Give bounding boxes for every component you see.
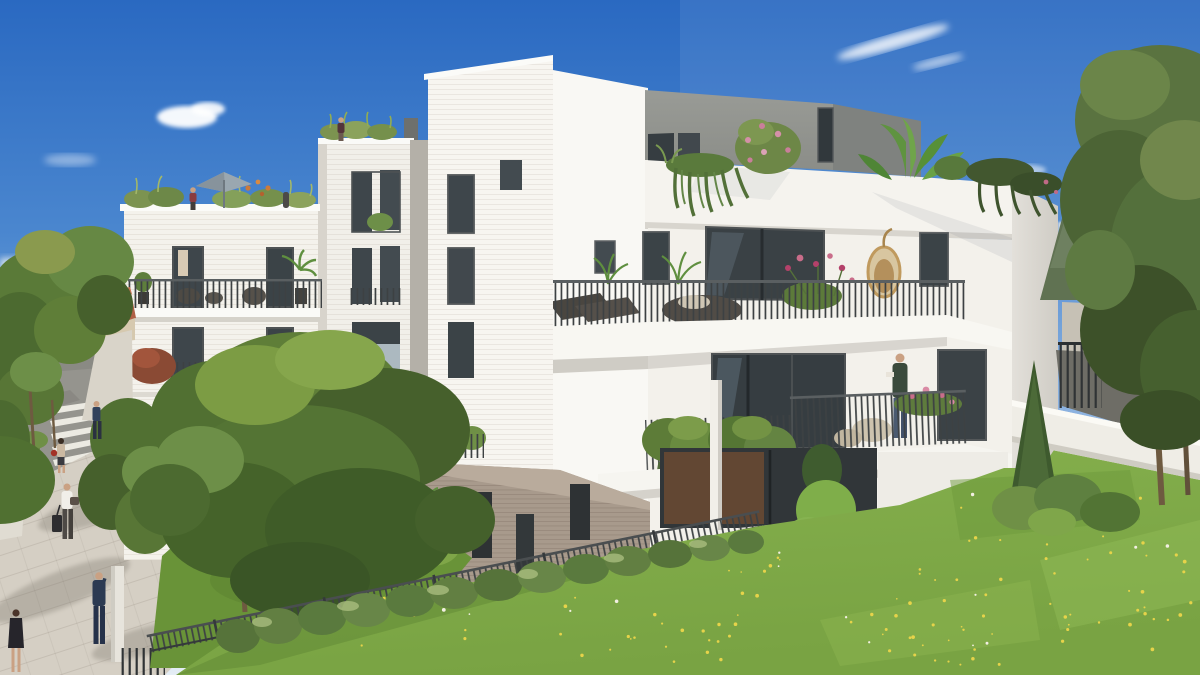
rooftop-woman-left bbox=[190, 187, 197, 210]
scene-canvas bbox=[0, 0, 1200, 675]
architectural-rendering bbox=[0, 0, 1200, 675]
mid-railing bbox=[790, 390, 968, 450]
rooftop-woman-middle bbox=[338, 117, 345, 141]
rooftop-person-2 bbox=[283, 192, 289, 208]
